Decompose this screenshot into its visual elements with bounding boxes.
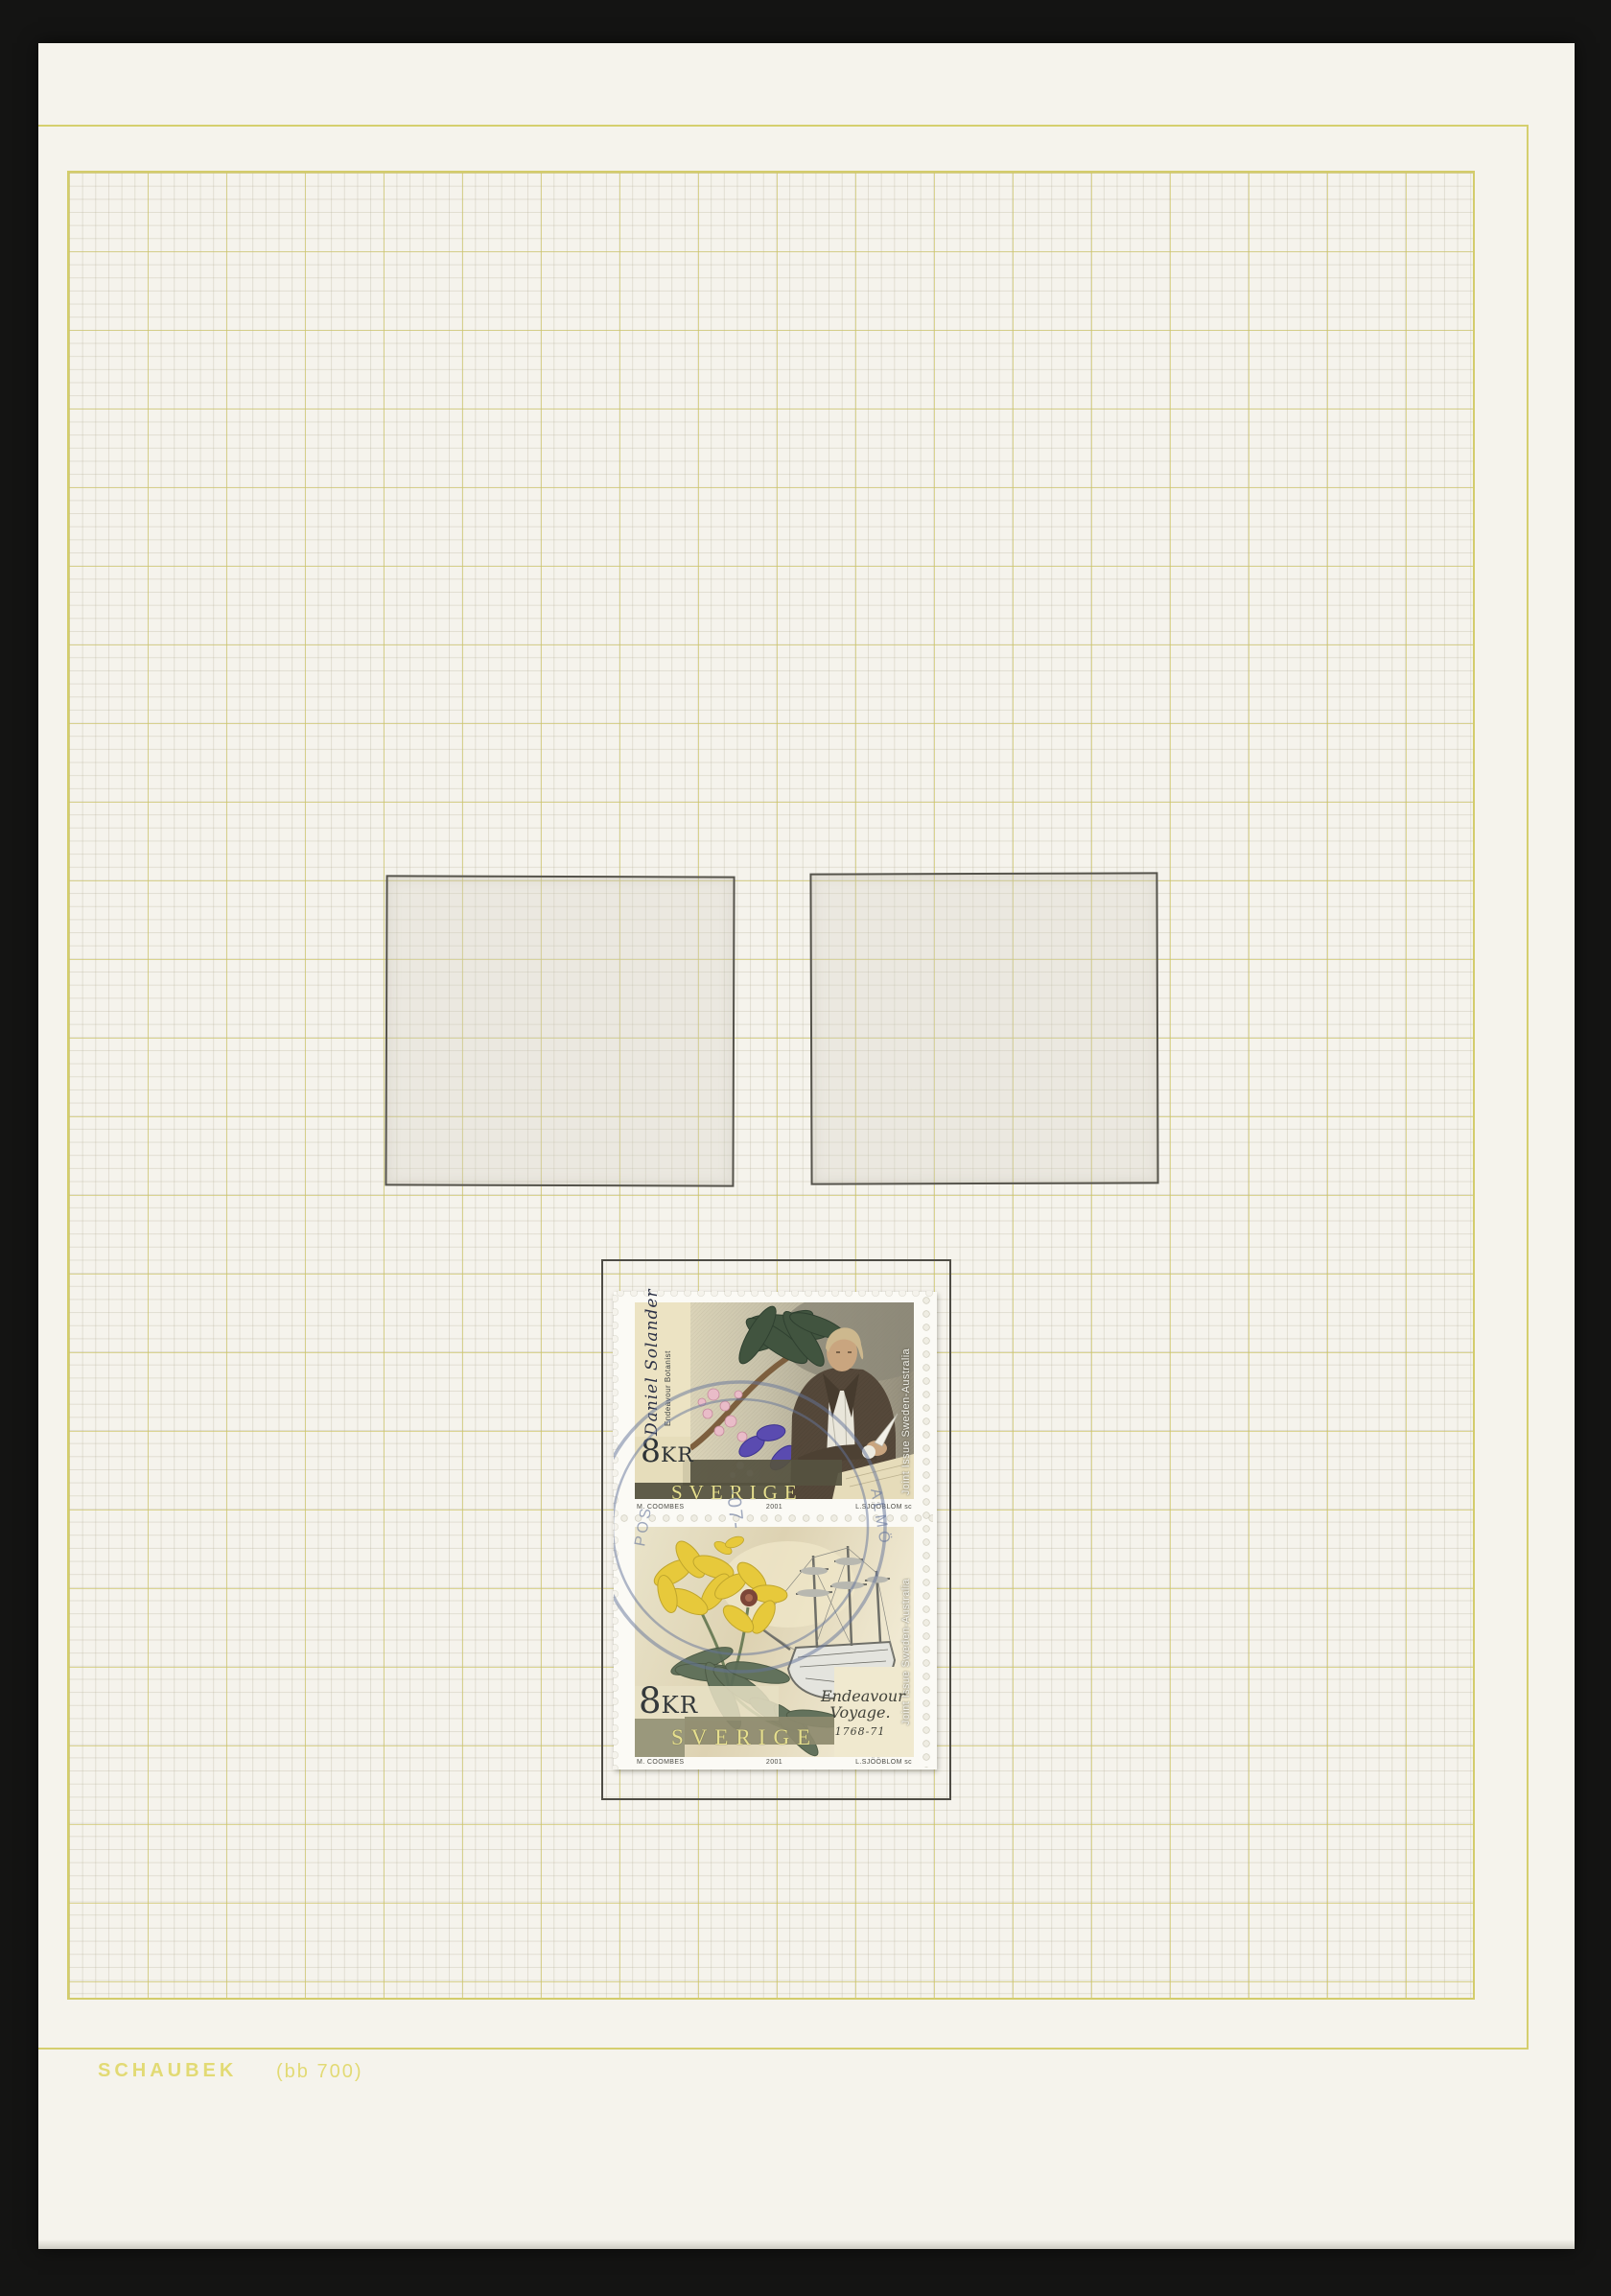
denom-unit: KR: [662, 1691, 699, 1719]
stamp-bottom-denomination: 8KR: [639, 1680, 698, 1722]
denom-number: 8: [641, 1432, 661, 1469]
empty-stamp-mount-right: [809, 872, 1158, 1184]
album-page: Daniel Solander Endeavour Botanist Joint…: [38, 43, 1575, 2249]
perforation-top-edge: [614, 1291, 937, 1299]
year-credit: 2001: [766, 1504, 782, 1511]
designer-credit: M. COOMBES: [637, 1504, 685, 1511]
perforation-left-edge: [613, 1292, 620, 1769]
stamp-top-solander-art: [635, 1302, 914, 1499]
engraver-credit: L.SJÖÖBLOM sc: [855, 1759, 912, 1766]
album-page-code: (bb 700): [276, 2061, 363, 2083]
stamp-top-subtitle: Endeavour Botanist: [664, 1350, 672, 1426]
photo-background: Daniel Solander Endeavour Botanist Joint…: [0, 0, 1611, 2296]
stamp-top-country: SVERIGE: [671, 1481, 804, 1505]
denom-unit: KR: [661, 1443, 694, 1467]
empty-stamp-mount-left: [385, 875, 735, 1186]
voyage-years: 1768-71: [821, 1723, 899, 1740]
stamp-top-credits: M. COOMBES 2001 L.SJÖÖBLOM sc: [637, 1504, 912, 1511]
stamp-top-joint-issue-label: Joint Issue Sweden-Australia: [900, 1348, 912, 1495]
stamp-top-script-name: Daniel Solander: [642, 1288, 662, 1436]
stamp-bottom-country: SVERIGE: [671, 1725, 818, 1750]
denom-number: 8: [639, 1680, 662, 1722]
voyage-script-line: Endeavour Voyage.: [821, 1687, 905, 1722]
year-credit: 2001: [766, 1759, 782, 1766]
frame-line-right: [1527, 125, 1529, 2050]
stamp-block: Daniel Solander Endeavour Botanist Joint…: [614, 1292, 937, 1769]
perforation-selvage-column: [921, 1294, 932, 1768]
stamp-top-denomination: 8KR: [641, 1432, 694, 1469]
engraver-credit: L.SJÖÖBLOM sc: [855, 1504, 912, 1511]
perforation-gutter-row: [618, 1512, 933, 1524]
album-brand: SCHAUBEK: [98, 2060, 237, 2082]
frame-line-bottom: [38, 2048, 1529, 2050]
designer-credit: M. COOMBES: [637, 1759, 685, 1766]
frame-line-top: [38, 125, 1529, 127]
stamp-bottom-credits: M. COOMBES 2001 L.SJÖÖBLOM sc: [637, 1759, 912, 1766]
stamp-bottom-script: Endeavour Voyage. 1768-71: [821, 1688, 899, 1740]
